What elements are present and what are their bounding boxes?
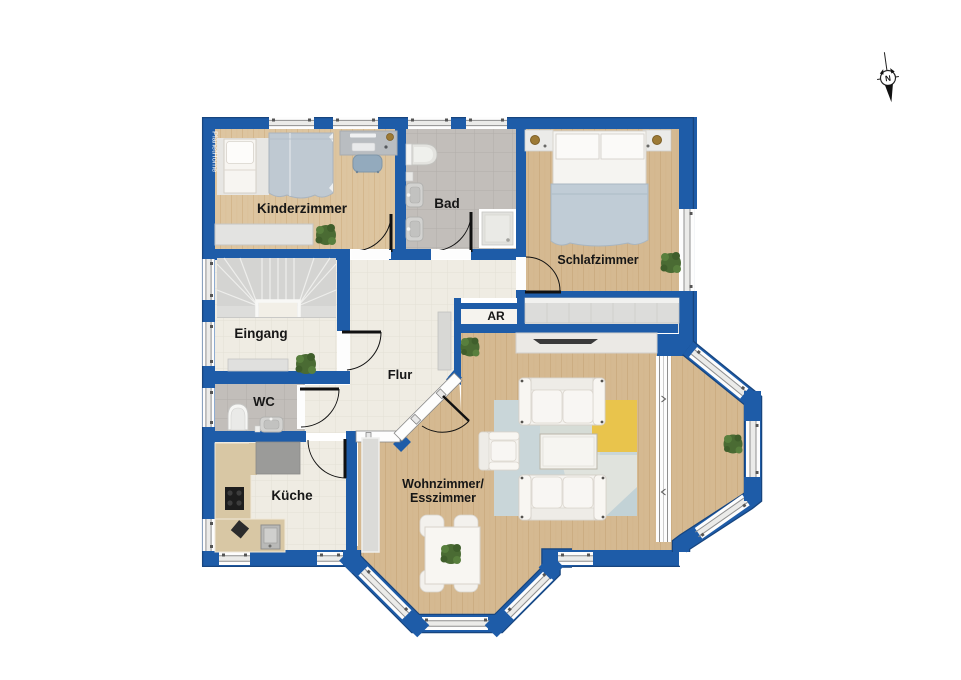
svg-text:Flur: Flur <box>388 367 413 382</box>
svg-text:Kinderzimmer: Kinderzimmer <box>257 201 348 216</box>
svg-text:AR: AR <box>487 309 505 323</box>
svg-text:Schlafzimmer: Schlafzimmer <box>557 253 638 267</box>
svg-text:Wohnzimmer/: Wohnzimmer/ <box>402 477 484 491</box>
svg-text:PlanetHome: PlanetHome <box>211 131 220 172</box>
svg-text:Eingang: Eingang <box>234 326 287 341</box>
svg-text:Bad: Bad <box>434 196 460 211</box>
svg-text:Esszimmer: Esszimmer <box>410 491 476 505</box>
svg-text:WC: WC <box>253 394 275 409</box>
svg-text:Küche: Küche <box>271 488 313 503</box>
